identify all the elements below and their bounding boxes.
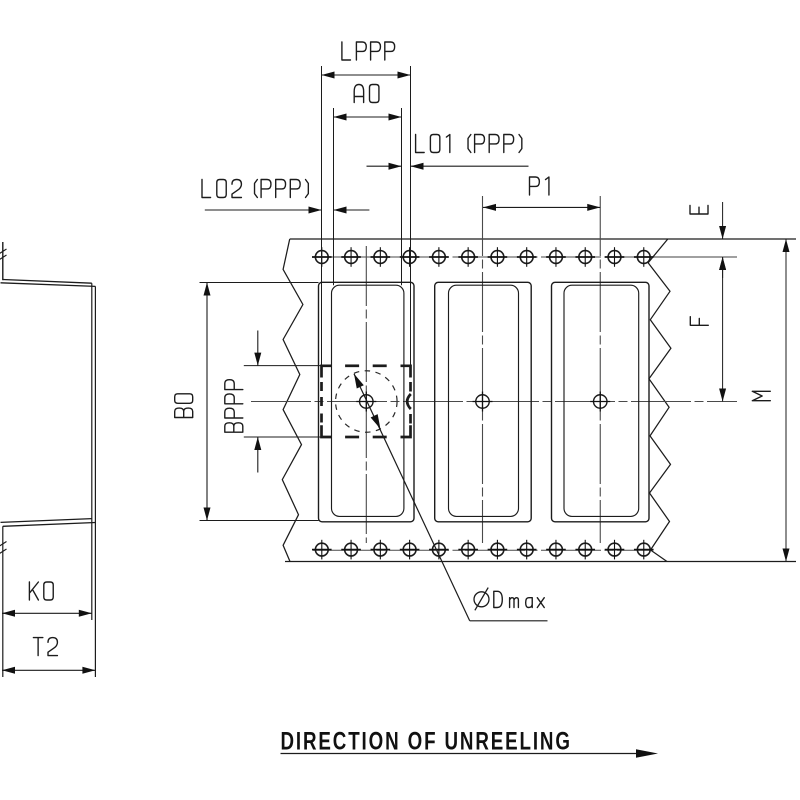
svg-text:DIRECTION OF UNREELING: DIRECTION OF UNREELING	[281, 727, 572, 755]
